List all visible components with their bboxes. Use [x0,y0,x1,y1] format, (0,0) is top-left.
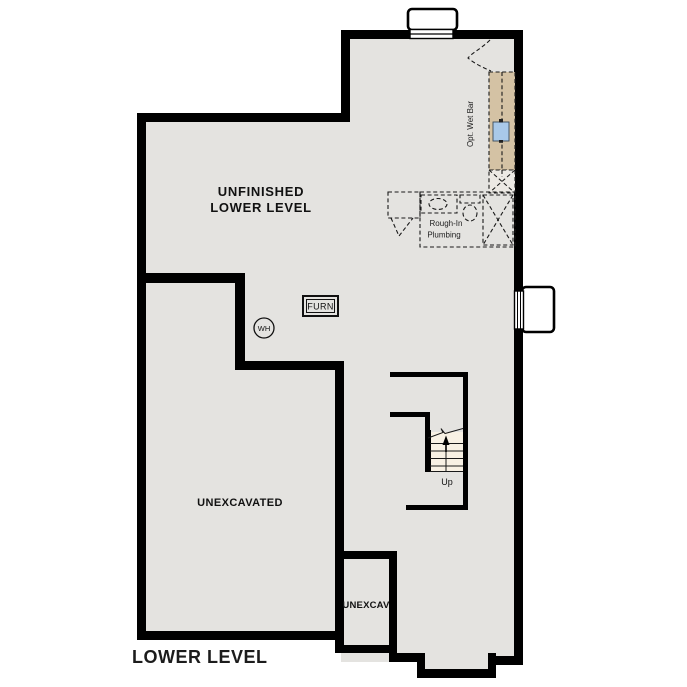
wall-small-room-top [335,551,397,559]
unfinished-label-line2: LOWER LEVEL [210,200,312,215]
unexcavated-main-label: UNEXCAVATED [197,497,283,509]
wall-left-section-top [137,113,350,122]
right-window-well [522,287,554,332]
wall-stair-l-horizontal [390,412,430,417]
wall-stair-bottom [406,505,468,510]
stairs-up-label: Up [441,477,453,487]
wall-stoop-bottom [417,669,496,678]
wall-left [137,113,146,640]
wall-unexcavated-step-vertical [235,273,245,370]
rough-in-label-line2: Plumbing [427,231,460,240]
sink-faucet-tick-top [499,119,503,123]
wall-unexcavated-top [137,273,245,283]
unexcavated-small-label: UNEXCAV [342,600,390,611]
water-heater-label: WH [258,324,271,333]
unfinished-label-line1: UNFINISHED [218,184,304,199]
furnace-label: FURN [307,302,334,312]
wall-small-room-right [389,551,397,653]
wall-bottom-b [488,656,523,665]
floor-plan-canvas: UNFINISHED LOWER LEVEL UNEXCAVATED UNEXC… [0,0,687,687]
wall-left-section-bottom [137,631,344,640]
wet-bar-sink-icon [493,122,509,141]
wall-stair-right [463,372,468,510]
top-window-well [408,9,457,30]
wet-bar-label: Opt. Wet Bar [466,101,475,147]
sink-faucet-tick-bottom [499,140,503,143]
wall-small-room-bottom [335,645,397,653]
wall-upper-left-of-right-section [341,30,350,122]
plan-title: LOWER LEVEL [132,647,268,667]
stairs-group [428,429,463,473]
right-window-icon [515,291,524,329]
rough-in-label-line1: Rough-In [430,219,463,228]
wall-unexcavated-step-horizontal [235,361,344,370]
wall-stair-top [390,372,468,377]
floor-plan: UNFINISHED LOWER LEVEL UNEXCAVATED UNEXC… [0,0,687,687]
